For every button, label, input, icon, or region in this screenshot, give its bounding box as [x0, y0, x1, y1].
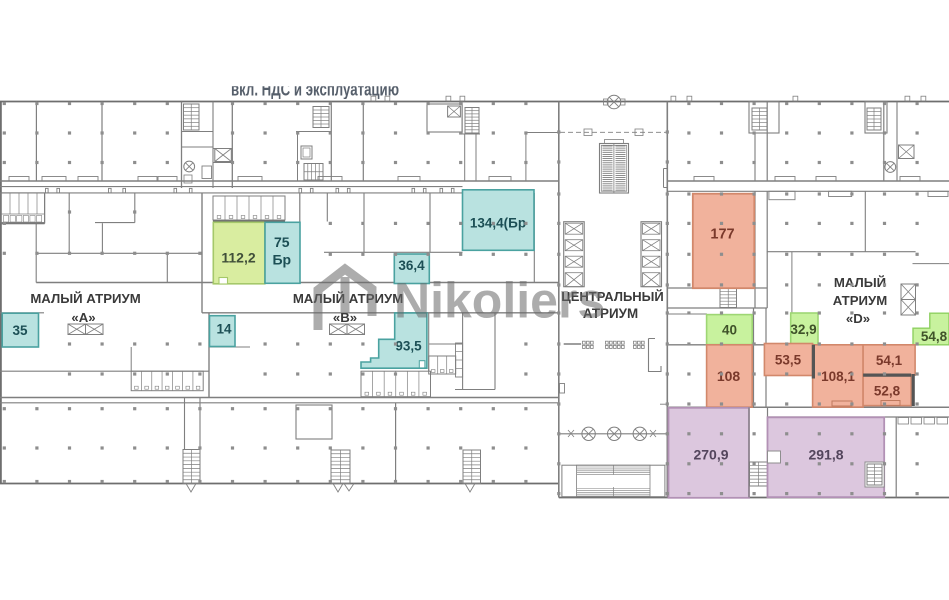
svg-text:«А»: «А» [71, 310, 95, 325]
svg-text:АТРИУМ: АТРИУМ [833, 293, 887, 308]
svg-text:75: 75 [274, 234, 290, 250]
svg-text:54,8: 54,8 [921, 329, 948, 344]
svg-text:МАЛЫЙ: МАЛЫЙ [834, 275, 886, 290]
svg-text:54,1: 54,1 [876, 353, 903, 368]
svg-text:МАЛЫЙ АТРИУМ: МАЛЫЙ АТРИУМ [30, 291, 140, 306]
svg-text:32,9: 32,9 [790, 322, 816, 337]
svg-text:«В»: «В» [333, 310, 357, 325]
svg-text:108: 108 [717, 368, 741, 384]
svg-text:35: 35 [12, 323, 28, 338]
svg-text:52,8: 52,8 [874, 384, 901, 399]
svg-text:270,9: 270,9 [693, 447, 728, 463]
svg-text:40: 40 [722, 323, 737, 338]
svg-text:108,1: 108,1 [821, 369, 855, 384]
svg-text:112,2: 112,2 [221, 250, 255, 266]
svg-text:Бр: Бр [272, 252, 291, 268]
svg-text:53,5: 53,5 [775, 353, 802, 368]
svg-text:14: 14 [216, 322, 232, 337]
svg-text:36,4: 36,4 [398, 258, 425, 273]
svg-text:93,5: 93,5 [395, 339, 422, 354]
svg-text:177: 177 [710, 227, 734, 243]
svg-text:«D»: «D» [846, 311, 870, 326]
svg-text:Nikoliers: Nikoliers [394, 273, 605, 329]
svg-text:291,8: 291,8 [808, 447, 843, 463]
svg-text:134,4(Бр: 134,4(Бр [470, 216, 526, 231]
